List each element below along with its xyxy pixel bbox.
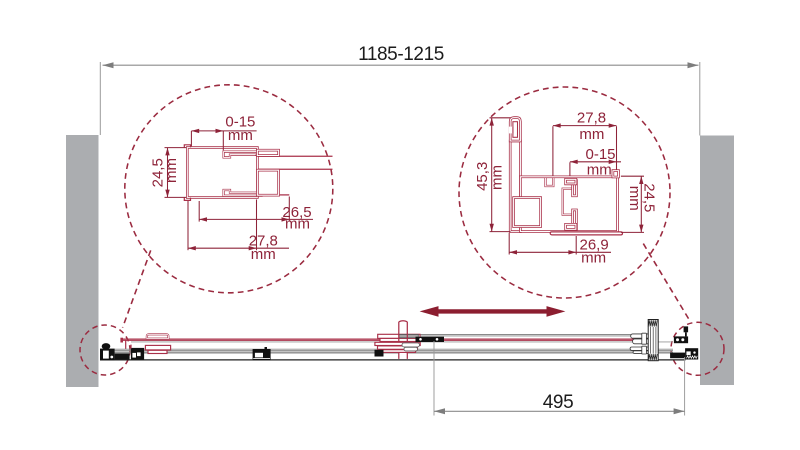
svg-text:mm: mm <box>163 158 180 183</box>
svg-text:mm: mm <box>587 161 612 178</box>
svg-text:mm: mm <box>626 186 643 211</box>
svg-text:mm: mm <box>579 126 604 143</box>
svg-text:mm: mm <box>251 246 276 263</box>
svg-text:mm: mm <box>488 165 505 190</box>
svg-text:mm: mm <box>285 215 310 232</box>
svg-text:1185-1215: 1185-1215 <box>358 44 444 65</box>
svg-text:495: 495 <box>543 392 574 413</box>
svg-text:0-15: 0-15 <box>585 146 615 163</box>
svg-text:27,8: 27,8 <box>577 109 606 126</box>
svg-text:mm: mm <box>228 127 253 144</box>
svg-text:mm: mm <box>581 250 606 267</box>
